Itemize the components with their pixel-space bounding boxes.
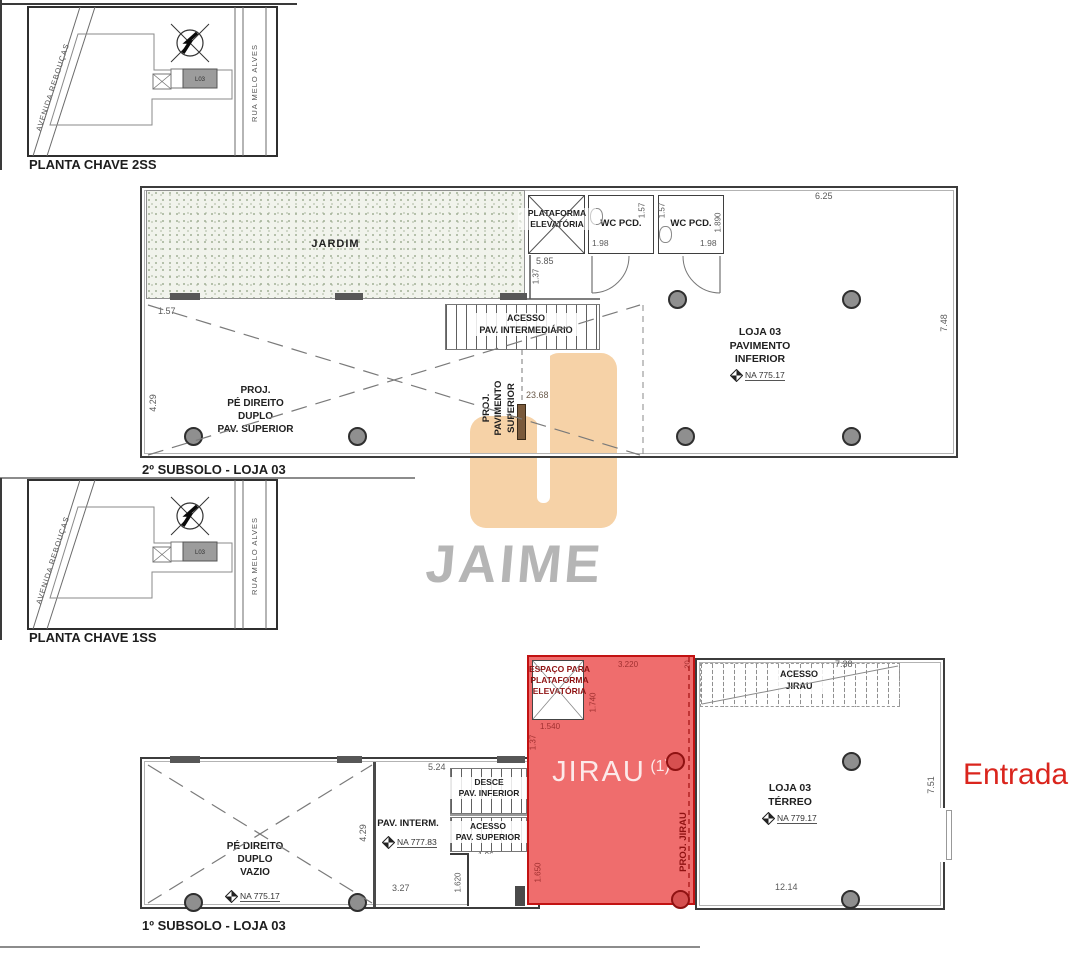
room-wc2-label: WC PCD.: [670, 218, 711, 230]
dim-left-height: 4.29: [358, 824, 368, 842]
keyplan-title: PLANTA CHAVE 2SS: [29, 157, 157, 172]
dim-bottom: 12.14: [775, 882, 798, 892]
room-plataforma-label: PLATAFORMA ELEVATÓRIA: [518, 208, 596, 230]
column-red: [666, 752, 685, 771]
dim-wall-top: 20: [683, 660, 692, 668]
plan-2ss-title: 2º SUBSOLO - LOJA 03: [142, 462, 286, 477]
dim-wc1-width: 1.98: [592, 238, 609, 248]
street-name-diagonal: AVENIDA REBOUÇAS: [34, 515, 71, 605]
keyplan-1ss: L03 AVENIDA REBOUÇAS RUA MELO ALVES PLAN…: [25, 476, 283, 648]
wall-column-strip: [500, 293, 527, 300]
level-marker-loja-terreo: NA 779.17: [762, 812, 817, 825]
wall-column-strip: [170, 756, 200, 763]
dim-espaco-width: 3.220: [618, 660, 638, 669]
dim-left-height: 4.29: [148, 394, 158, 412]
plan-1ss: DESCE PAV. INFERIOR ACESSO PAV. SUPERIOR…: [140, 640, 980, 950]
dim-wc2-depth: 1.57: [657, 203, 666, 219]
room-jardim: JARDIM: [146, 190, 525, 299]
lot-label: L03: [195, 550, 206, 556]
interior-wall: [373, 762, 376, 907]
room-jirau-label: JIRAU (1): [535, 756, 687, 789]
level-marker-pav-interm: NA 777.83: [382, 836, 437, 849]
street-name-vertical: RUA MELO ALVES: [250, 44, 259, 122]
lot-label: L03: [195, 77, 206, 83]
entrance-door: [946, 810, 952, 860]
street-name-diagonal: AVENIDA REBOUÇAS: [34, 42, 71, 132]
dim-top: 6.25: [815, 191, 833, 201]
page-edge-left-1: [0, 0, 2, 170]
dim-wc2-width: 1.98: [700, 238, 717, 248]
dim-jardim-edge: 1.57: [158, 306, 176, 316]
dim-espaco-inner: 1.540: [540, 722, 560, 731]
page-edge-left-2: [0, 478, 2, 640]
room-jardim-label: JARDIM: [311, 237, 359, 251]
room-wc1-label: WC PCD.: [600, 218, 641, 230]
keyplan-2ss: L03 AVENIDA REBOUÇAS RUA MELO ALVES PLAN…: [25, 3, 283, 175]
dim-jirau-left: 1.650: [534, 862, 543, 882]
dim-espaco-depth: 1.740: [589, 692, 598, 712]
dim-interm-top: 5.24: [428, 762, 446, 772]
wall-column-strip: [170, 293, 200, 300]
proj-pavimento-superior-label: PROJ. PAVIMENTO SUPERIOR: [481, 363, 519, 453]
level-marker-icon: [762, 812, 775, 825]
stairs-acesso-superior-label: ACESSO PAV. SUPERIOR: [444, 821, 532, 843]
dim-wall-right: 1.890: [714, 212, 723, 232]
keyplan-2ss-drawing: L03 AVENIDA REBOUÇAS RUA MELO ALVES PLAN…: [25, 3, 283, 175]
column: [348, 893, 367, 912]
stairs-acesso-intermediario-label: ACESSO PAV. INTERMEDIÁRIO: [470, 313, 582, 336]
wall-column-strip: [335, 293, 363, 300]
level-marker-icon: [730, 369, 743, 382]
column: [184, 427, 203, 446]
dim-proj-extent: 23.68: [526, 390, 549, 400]
dim-corridor: 1.37: [531, 269, 540, 285]
column-red: [671, 890, 690, 909]
keyplan-1ss-drawing: L03 AVENIDA REBOUÇAS RUA MELO ALVES PLAN…: [25, 476, 283, 648]
dim-espaco-left: 1.37: [528, 735, 537, 751]
column: [184, 893, 203, 912]
dim-right: 7.51: [926, 776, 936, 794]
column: [676, 427, 695, 446]
dim-right: 7.48: [939, 314, 949, 332]
dim-plataforma-front: 5.85: [536, 256, 554, 266]
column: [842, 752, 861, 771]
level-marker-icon: [225, 890, 238, 903]
entrada-annotation: Entrada: [963, 758, 1068, 792]
wall-column-strip: [337, 756, 362, 763]
dim-wc1-depth: 1.57: [637, 203, 646, 219]
level-value: NA 775.17: [745, 370, 785, 381]
column: [348, 427, 367, 446]
plan-2ss: JARDIM WC PCD. WC PCD. PLATAFORMA ELEVAT…: [140, 186, 970, 486]
floor-plan-page: JAIME L03 AVENIDA REBOUÇAS RUA MELO: [0, 0, 1090, 960]
watermark-brand-text: JAIME: [423, 534, 605, 595]
level-value: NA 777.83: [397, 837, 437, 848]
wall-column-strip: [497, 756, 525, 763]
column: [842, 290, 861, 309]
stairs-desce-label: DESCE PAV. INFERIOR: [448, 777, 530, 799]
stair-landing: [450, 814, 527, 816]
north-arrow-icon: [171, 497, 209, 535]
room-pe-direito-label: PÉ DIREITO DUPLO VAZIO: [205, 840, 305, 879]
room-proj-pe-direito-label: PROJ. PÉ DIREITO DUPLO PAV. SUPERIOR: [198, 384, 313, 436]
level-marker-loja-inferior: NA 775.17: [730, 369, 785, 382]
toilet-icon: [659, 226, 672, 243]
level-value: NA 775.17: [240, 891, 280, 902]
dim-stair-width: 1.620: [454, 872, 463, 892]
room-pav-interm-label: PAV. INTERM.: [368, 818, 448, 830]
dim-interm-bottom: 3.27: [392, 883, 410, 893]
dim-stairs-top: 7.38: [835, 659, 853, 669]
column: [841, 890, 860, 909]
stairs-acesso-jirau-label: ACESSO JIRAU: [768, 669, 830, 692]
level-marker-pe-direito: NA 775.17: [225, 890, 280, 903]
keyplan-title: PLANTA CHAVE 1SS: [29, 630, 157, 645]
plan-1ss-title: 1º SUBSOLO - LOJA 03: [142, 918, 286, 933]
wood-post: [517, 404, 526, 440]
level-value: NA 779.17: [777, 813, 817, 824]
column: [668, 290, 687, 309]
column: [842, 427, 861, 446]
level-marker-icon: [382, 836, 395, 849]
north-arrow-icon: [171, 24, 209, 62]
room-loja-inferior-label: LOJA 03 PAVIMENTO INFERIOR: [710, 326, 810, 367]
street-name-vertical: RUA MELO ALVES: [250, 517, 259, 595]
room-loja-terreo-label: LOJA 03 TÉRREO: [750, 782, 830, 809]
room-espaco-plataforma-label: ESPAÇO PARA PLATAFORMA ELEVATÓRIA: [523, 664, 596, 697]
jirau-text: JIRAU: [552, 756, 646, 788]
wall-column-strip: [515, 886, 525, 906]
proj-jirau-label: PROJ. JIRAU: [678, 796, 690, 888]
